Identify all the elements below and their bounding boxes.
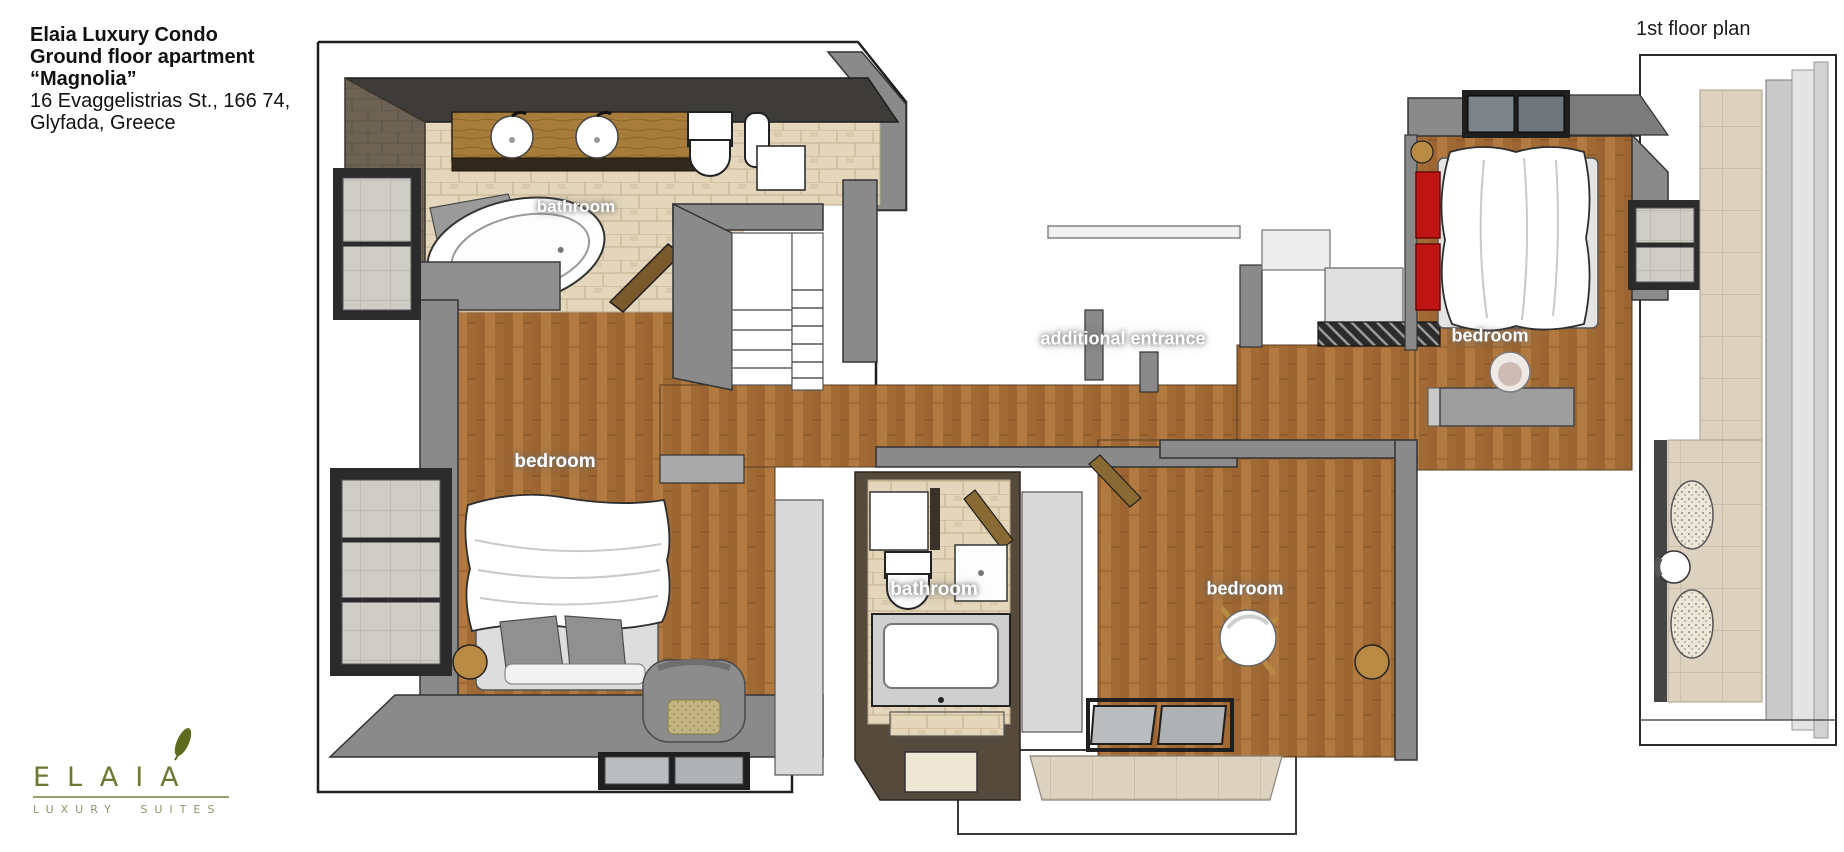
label-bedroom-center: bedroom — [1206, 579, 1283, 600]
duvet — [465, 495, 669, 631]
duvet — [1441, 147, 1589, 331]
logo-rule — [33, 796, 229, 798]
desk — [1428, 388, 1574, 426]
headboard-red — [1416, 244, 1440, 310]
logo-wordmark: ELAIA — [33, 762, 238, 793]
label-bathroom-center: bathroom — [890, 579, 978, 601]
bathtub — [872, 614, 1010, 706]
logo-tagline: LUXURY SUITES — [33, 803, 238, 816]
round-table — [1658, 551, 1690, 583]
wicker-chair — [1671, 590, 1713, 658]
shelf — [660, 455, 744, 483]
wardrobe-panel — [1022, 492, 1082, 732]
label-additional-entrance: additional entrance — [1040, 329, 1205, 350]
armchair — [643, 660, 745, 742]
vanity-double-sink — [452, 112, 705, 171]
headboard-red — [1416, 172, 1440, 238]
door-jamb — [1140, 352, 1158, 392]
label-bedroom-left: bedroom — [514, 451, 595, 473]
elaia-logo: ELAIA LUXURY SUITES — [33, 730, 238, 816]
window — [1628, 200, 1702, 290]
bed-double — [1411, 141, 1598, 331]
floor-plan-drawing — [0, 0, 1844, 852]
wicker-chair — [1671, 481, 1713, 549]
olive-leaf-icon — [161, 726, 201, 762]
sliding-door — [598, 752, 750, 790]
bed-double — [453, 495, 670, 690]
grill-unit — [1318, 322, 1440, 346]
nightstand — [1411, 141, 1433, 163]
cabinet — [1325, 268, 1403, 326]
wardrobe-panel — [775, 500, 823, 775]
label-bathroom-top: bathroom — [537, 197, 615, 217]
washer-cabinet — [870, 492, 928, 550]
round-stool — [1355, 645, 1389, 679]
toilet — [688, 112, 732, 176]
round-stool — [453, 645, 487, 679]
window — [330, 468, 452, 676]
window — [333, 168, 421, 320]
floor-plan-page: Elaia Luxury Condo Ground floor apartmen… — [0, 0, 1844, 852]
patio-tiles — [1030, 756, 1282, 800]
shower-cabin — [757, 146, 805, 190]
staircase — [673, 180, 877, 390]
skylight-window — [1462, 90, 1570, 138]
entry-step — [905, 752, 977, 792]
label-bedroom-top-right: bedroom — [1451, 326, 1528, 347]
